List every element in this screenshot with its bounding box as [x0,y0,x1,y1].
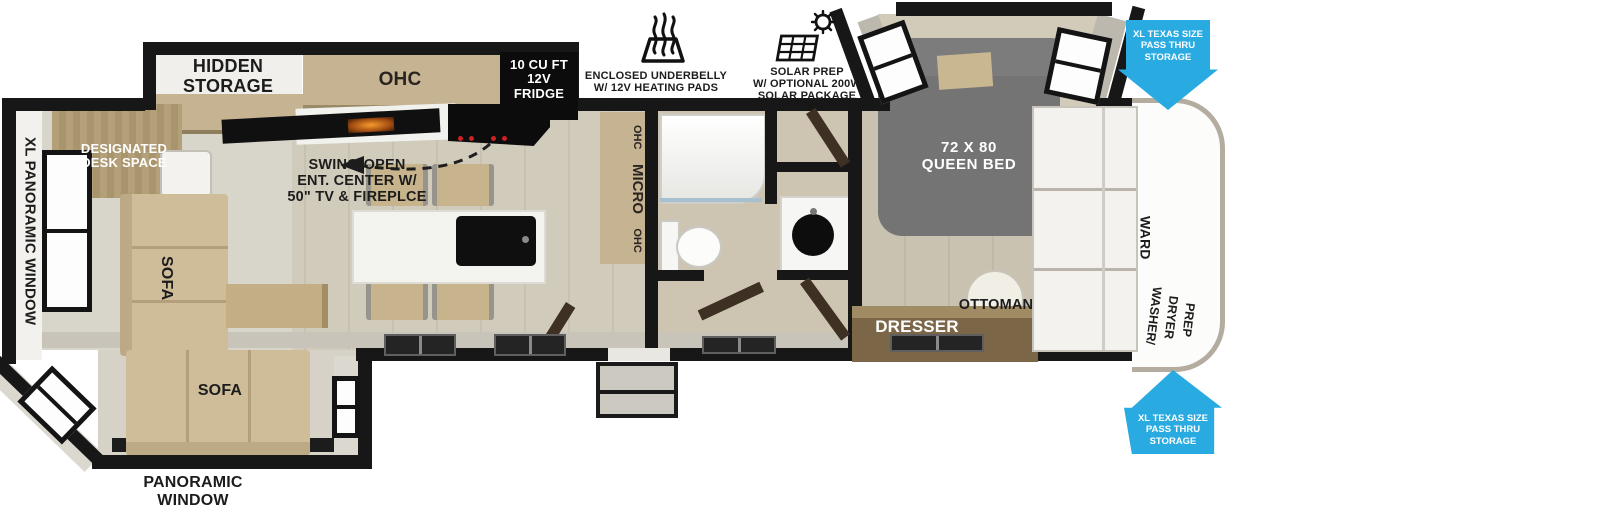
ohc-kitchen-label: OHC [355,70,445,91]
dining-chair [432,278,494,320]
desk-label: DESIGNATED DESK SPACE [64,142,184,171]
wall-rearslide-bottom [92,455,372,469]
wall-bedslide-top [896,2,1112,16]
toilet-bowl [676,226,722,268]
pass-thru-arrow-bottom: XL TEXAS SIZE PASS THRU STORAGE [1124,370,1222,454]
window-rearslide-right [332,376,360,438]
dresser-label: DRESSER [862,318,972,337]
island-faucet [522,236,529,243]
window-bottom-2 [494,334,566,356]
washer-dryer-label: WASHER/ DRYER PREP [1138,265,1208,371]
solar-panel-icon [772,10,838,68]
wall-bath-bottom-right [777,270,851,280]
xl-panoramic-window-label: XL PANORAMIC WINDOW [15,106,43,356]
pantry-ohc-top: OHC [631,125,643,149]
pass-thru-top-label: XL TEXAS SIZE PASS THRU STORAGE [1118,29,1218,63]
pantry-micro: MICRO [629,164,646,214]
pantry-label: OHC MICRO OHC [602,116,646,262]
shower [660,114,766,204]
wall-slideout-left [143,42,156,110]
shower-glass [660,198,762,202]
heat-waves-icon [632,6,694,68]
sofa-side-label: SOFA [152,238,180,318]
wall-bath-left [645,108,658,348]
window-bottom-bedroom [890,334,984,352]
pantry-ohc-bottom: OHC [631,228,643,252]
window-rear-angled [17,365,96,444]
window-bottom-1 [384,334,456,356]
dining-chair [366,278,428,320]
wall-rearslide-right [358,348,372,469]
swing-open-label: SWING-OPEN ENT. CENTER W/ 50" TV & FIREP… [266,158,448,206]
entry-steps [596,362,678,418]
window-rear [42,150,92,312]
window-bottom-3 [702,336,776,354]
fridge-label: 10 CU FT 12V FRIDGE [502,58,576,101]
underbelly-label: ENCLOSED UNDERBELLY W/ 12V HEATING PADS [572,70,740,94]
sofa-rear [126,350,310,456]
sofa-rear-label: SOFA [185,382,255,400]
entry-door-opening [608,348,670,361]
bath-faucet [810,208,817,215]
pass-thru-arrow-top: XL TEXAS SIZE PASS THRU STORAGE [1118,20,1218,110]
wall-bath-divider [765,108,777,204]
wardrobe-label: WARD [1134,202,1156,274]
pass-thru-bottom-label: XL TEXAS SIZE PASS THRU STORAGE [1124,413,1222,447]
bed-pillow [937,52,993,90]
wardrobe-cabinet [1032,106,1138,352]
ottoman-label: OTTOMAN [940,298,1052,314]
wall-bath-bottom-left [658,270,704,281]
hidden-storage-label: HIDDEN STORAGE [158,57,298,97]
fireplace-glow [348,117,395,133]
wall-rear-left [2,98,16,364]
rv-floorplan: HIDDEN STORAGE OHC 10 CU FT 12V FRIDGE D… [0,0,1600,517]
panoramic-window-label: PANORAMIC WINDOW [118,474,268,509]
queen-bed-label: 72 X 80 QUEEN BED [898,140,1040,173]
solar-prep-label: SOLAR PREP W/ OPTIONAL 200W SOLAR PACKAG… [736,66,878,102]
bath-sink [792,214,834,256]
coffee-table [226,284,328,328]
